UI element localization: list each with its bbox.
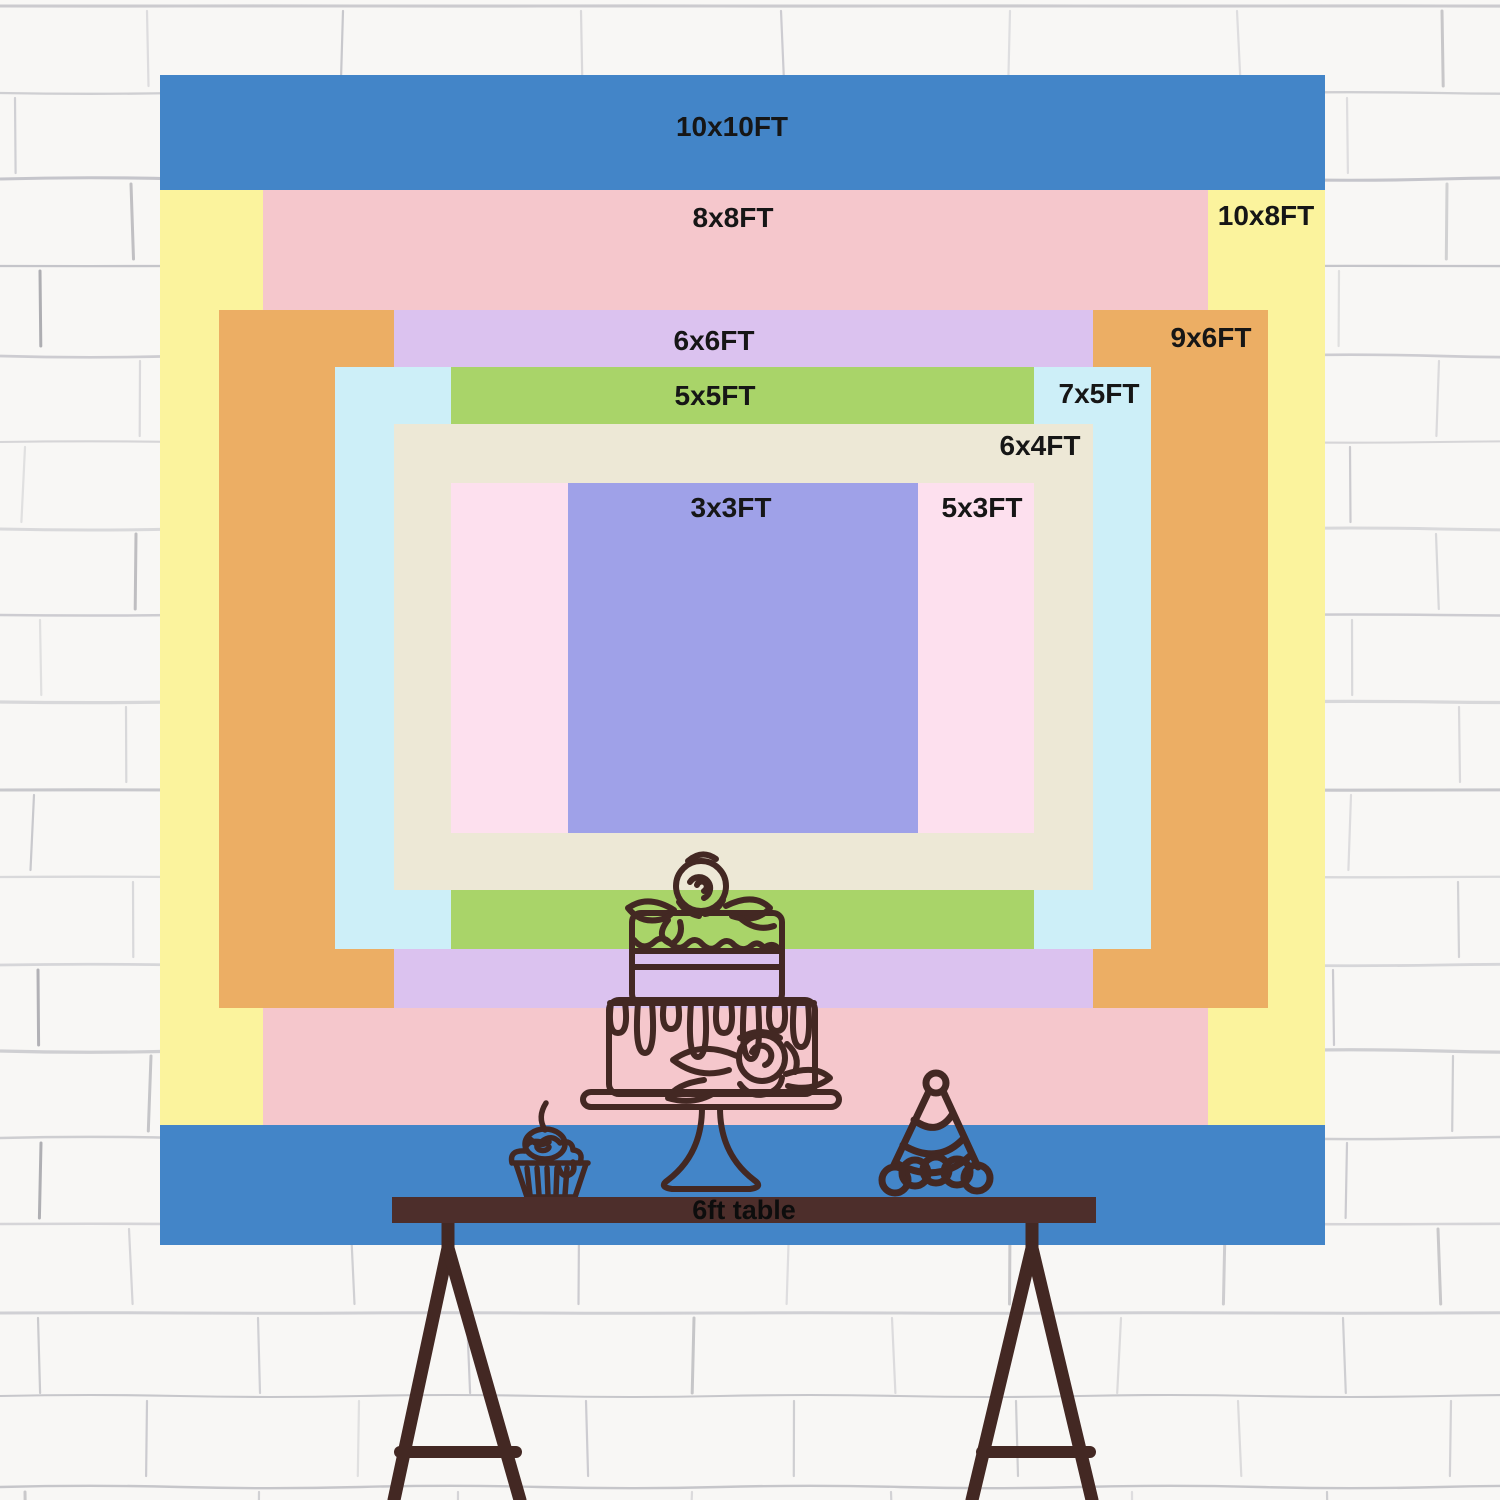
- size-label-5x3: 5x3FT: [942, 492, 1023, 524]
- size-label-6x4: 6x4FT: [1000, 430, 1081, 462]
- size-label-3x3: 3x3FT: [691, 492, 772, 524]
- size-label-6x6: 6x6FT: [674, 325, 755, 357]
- size-rect-3x3: [568, 483, 918, 833]
- table-top: 6ft table: [392, 1197, 1096, 1223]
- size-label-10x8: 10x8FT: [1218, 200, 1315, 232]
- size-label-8x8: 8x8FT: [693, 202, 774, 234]
- size-label-9x6: 9x6FT: [1171, 322, 1252, 354]
- table-label: 6ft table: [692, 1197, 796, 1223]
- size-label-7x5: 7x5FT: [1059, 378, 1140, 410]
- size-label-10x10: 10x10FT: [676, 111, 788, 143]
- size-label-5x5: 5x5FT: [675, 380, 756, 412]
- scene: 10x10FT10x8FT8x8FT9x6FT6x6FT7x5FT5x5FT6x…: [0, 0, 1500, 1500]
- size-chart-backdrop: 10x10FT10x8FT8x8FT9x6FT6x6FT7x5FT5x5FT6x…: [160, 75, 1325, 1245]
